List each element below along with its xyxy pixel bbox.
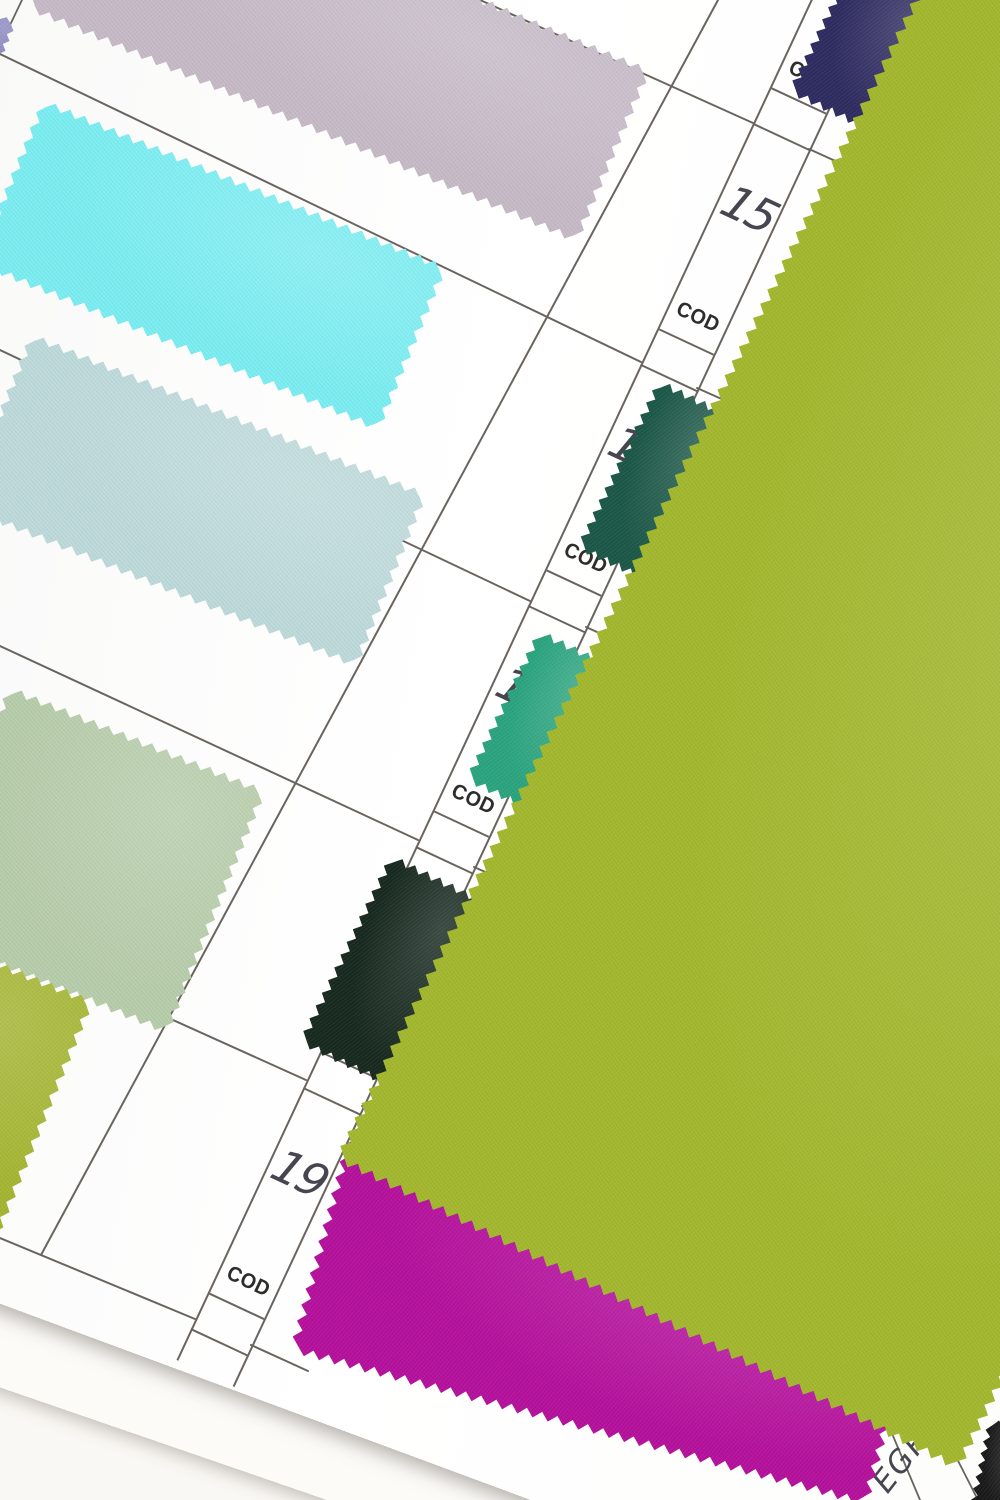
row-separator xyxy=(752,123,811,152)
row-separator xyxy=(190,1328,249,1357)
row-separator xyxy=(527,605,586,634)
fabric-color-card-photo: EGRo COD COD COD COD COD COD 14 15 16 17… xyxy=(0,0,1000,1500)
row-separator xyxy=(415,846,474,875)
row-separator xyxy=(302,1087,361,1116)
